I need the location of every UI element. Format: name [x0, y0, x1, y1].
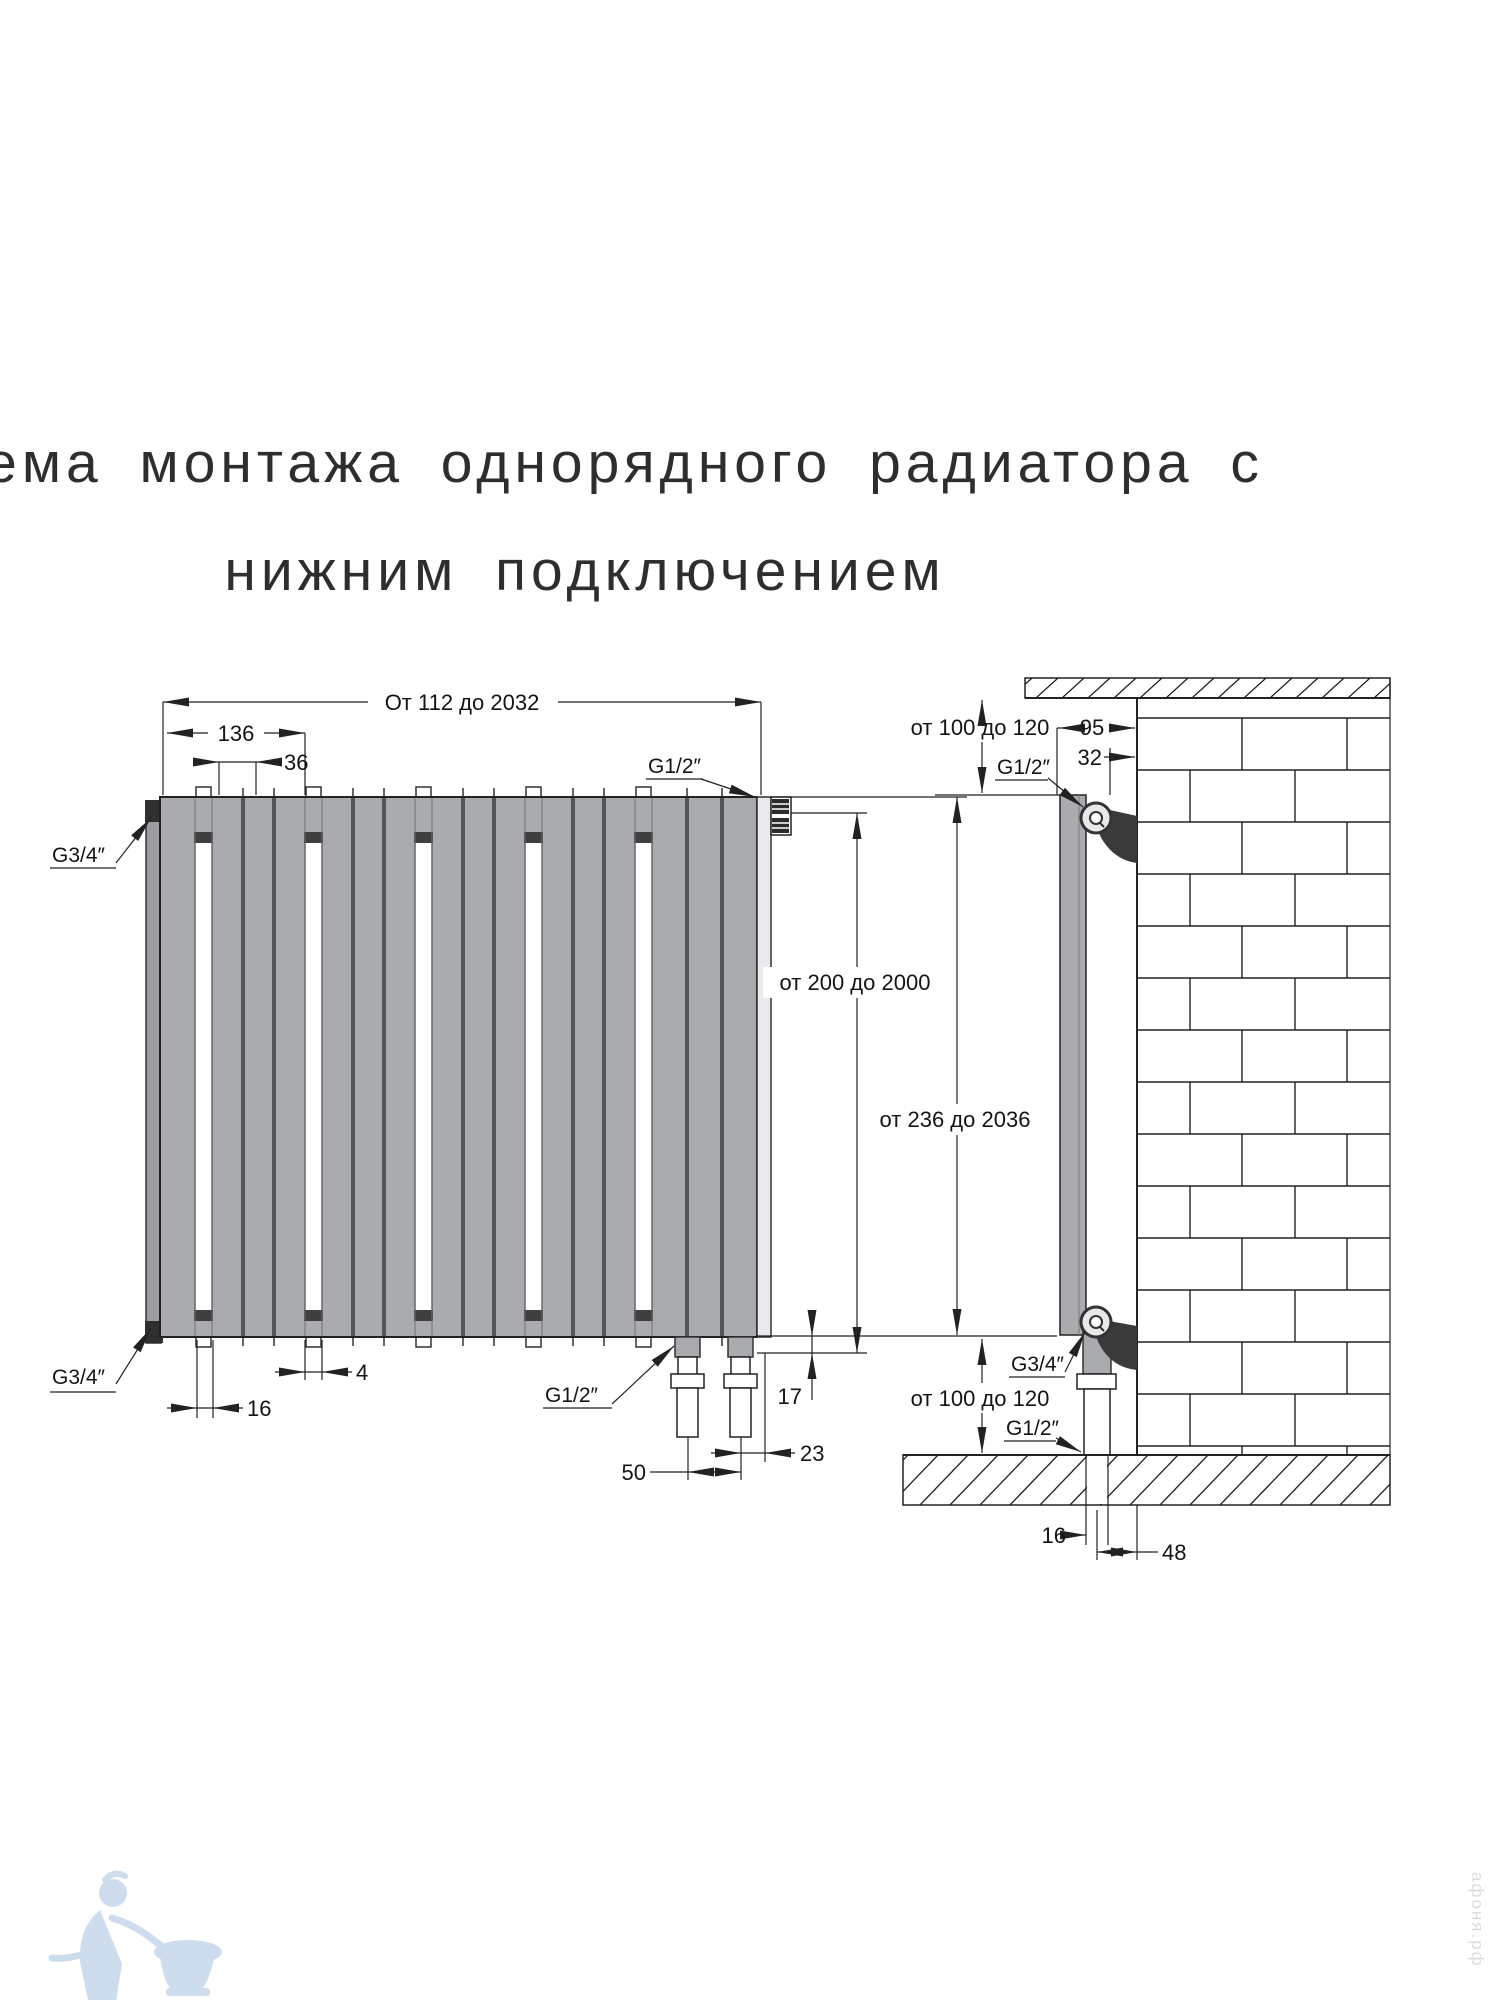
dim-top-clearance: от 100 до 120 — [911, 715, 1050, 740]
bottom-connection-pipes — [671, 1337, 757, 1437]
panel-gap — [305, 843, 322, 1310]
diagram-title: Схема монтажа однорядного радиатора с ни… — [0, 431, 1264, 603]
dim-arrow — [1111, 1548, 1137, 1557]
dim-arrow — [978, 1427, 987, 1453]
top-right-valve-fitting — [771, 797, 791, 835]
side-view-labels: от 100 до 120 95 32 G1/2″ G3/4″ от 100 д… — [911, 715, 1187, 1565]
conn-top-right: G1/2″ — [648, 755, 702, 778]
dim-wall-to-valve: 32 — [1078, 745, 1102, 770]
pipe-through-floor — [1087, 1456, 1107, 1504]
conn-bottom-union: G3/4″ — [1011, 1353, 1065, 1376]
top-notch — [636, 787, 651, 797]
dim-panel-pitch: 36 — [284, 750, 308, 775]
dim-arrow — [735, 698, 761, 707]
dim-wall-to-front: 95 — [1080, 715, 1104, 740]
radiator-panels — [160, 787, 757, 1347]
panel-gap — [635, 843, 652, 1310]
gap-bottom-shoulder — [304, 1310, 323, 1321]
dim-arrow — [953, 797, 962, 823]
bottom-notch — [196, 1337, 211, 1347]
top-notch — [196, 787, 211, 797]
dim-arrow — [715, 1468, 741, 1477]
dim-arrow — [167, 729, 193, 738]
dim-group-width: 136 — [218, 721, 255, 746]
dim-arrow — [256, 758, 282, 767]
front-view — [145, 787, 791, 1437]
dim-arrow — [171, 1404, 197, 1413]
dim-arrow — [978, 767, 987, 793]
diagram-page: Схема монтажа однорядного радиатора с ни… — [0, 0, 1500, 2000]
conn-bottom-pipes: G1/2″ — [545, 1384, 599, 1407]
top-wall-bracket — [1081, 803, 1137, 863]
dim-arrow — [279, 729, 305, 738]
dim-arrow — [978, 1339, 987, 1365]
radiator-right-endcap — [757, 797, 771, 1337]
conn-top-valve: G1/2″ — [997, 756, 1051, 779]
gap-top-shoulder — [414, 832, 433, 843]
dim-arrow — [808, 1353, 817, 1379]
top-notch — [416, 787, 431, 797]
bottom-notch — [636, 1337, 651, 1347]
radiator-left-endcap — [146, 803, 161, 1343]
brick-wall — [1137, 718, 1390, 1455]
dim-wall-to-pipe: 48 — [1162, 1540, 1186, 1565]
gap-bottom-shoulder — [194, 1310, 213, 1321]
dim-overall-width: От 112 до 2032 — [385, 690, 540, 715]
radiator-side-profile — [1060, 795, 1086, 1335]
dim-arrow — [808, 1310, 817, 1336]
conn-bottom-left: G3/4″ — [52, 1366, 106, 1389]
radiator-body — [160, 797, 757, 1337]
bottom-notch — [306, 1337, 321, 1347]
brand-watermark: афоня.рф — [1468, 1872, 1487, 1968]
bottom-wall-bracket — [1077, 1307, 1137, 1455]
dim-arrow — [715, 1449, 741, 1458]
dim-arrow — [213, 1404, 239, 1413]
gap-bottom-shoulder — [634, 1310, 653, 1321]
dim-bottom-clearance: от 100 до 120 — [911, 1386, 1050, 1411]
dim-arrow — [193, 758, 219, 767]
panel-gap — [195, 843, 212, 1310]
dim-panel-gap: 4 — [356, 1360, 368, 1385]
dim-arrow — [853, 813, 862, 839]
panel-gap — [525, 843, 542, 1310]
gap-top-shoulder — [524, 832, 543, 843]
installation-diagram: Схема монтажа однорядного радиатора с ни… — [0, 0, 1500, 2000]
dim-arrow — [163, 698, 189, 707]
plumber-watermark — [52, 1874, 222, 2000]
dim-arrow — [1056, 1436, 1083, 1456]
dim-arrow — [1109, 724, 1135, 733]
dim-arrow — [953, 1309, 962, 1335]
bottom-notch — [526, 1337, 541, 1347]
dim-height-total: от 236 до 2036 — [880, 1107, 1031, 1132]
dim-gap-width: 16 — [247, 1396, 271, 1421]
dim-stub-height: 17 — [778, 1384, 802, 1409]
gap-bottom-shoulder — [414, 1310, 433, 1321]
dim-arrow — [688, 1468, 714, 1477]
dim-pipe-size: 16 — [1042, 1523, 1066, 1548]
down-pipe — [1084, 1389, 1110, 1455]
panel-gap — [415, 843, 432, 1310]
bottom-notch — [416, 1337, 431, 1347]
dim-arrow — [853, 1327, 862, 1353]
dim-height-body: от 200 до 2000 — [780, 970, 931, 995]
dim-arrow — [765, 1449, 791, 1458]
gap-bottom-shoulder — [524, 1310, 543, 1321]
dim-edge-offset: 23 — [800, 1441, 824, 1466]
top-notch — [526, 787, 541, 797]
dim-pipe-spacing: 50 — [622, 1460, 646, 1485]
title-line-1: Схема монтажа однорядного радиатора с — [0, 431, 1264, 495]
top-notch — [306, 787, 321, 797]
conn-top-left: G3/4″ — [52, 844, 106, 867]
dim-arrow — [1109, 753, 1135, 762]
gap-top-shoulder — [194, 832, 213, 843]
conn-bottom-pipe: G1/2″ — [1006, 1417, 1060, 1440]
title-line-2: нижним подключением — [224, 539, 945, 603]
dim-arrow — [279, 1368, 305, 1377]
hatch-line — [860, 1455, 908, 1505]
gap-top-shoulder — [304, 832, 323, 843]
dim-arrow — [322, 1368, 348, 1377]
gap-top-shoulder — [634, 832, 653, 843]
pipe-collar — [1077, 1374, 1116, 1389]
